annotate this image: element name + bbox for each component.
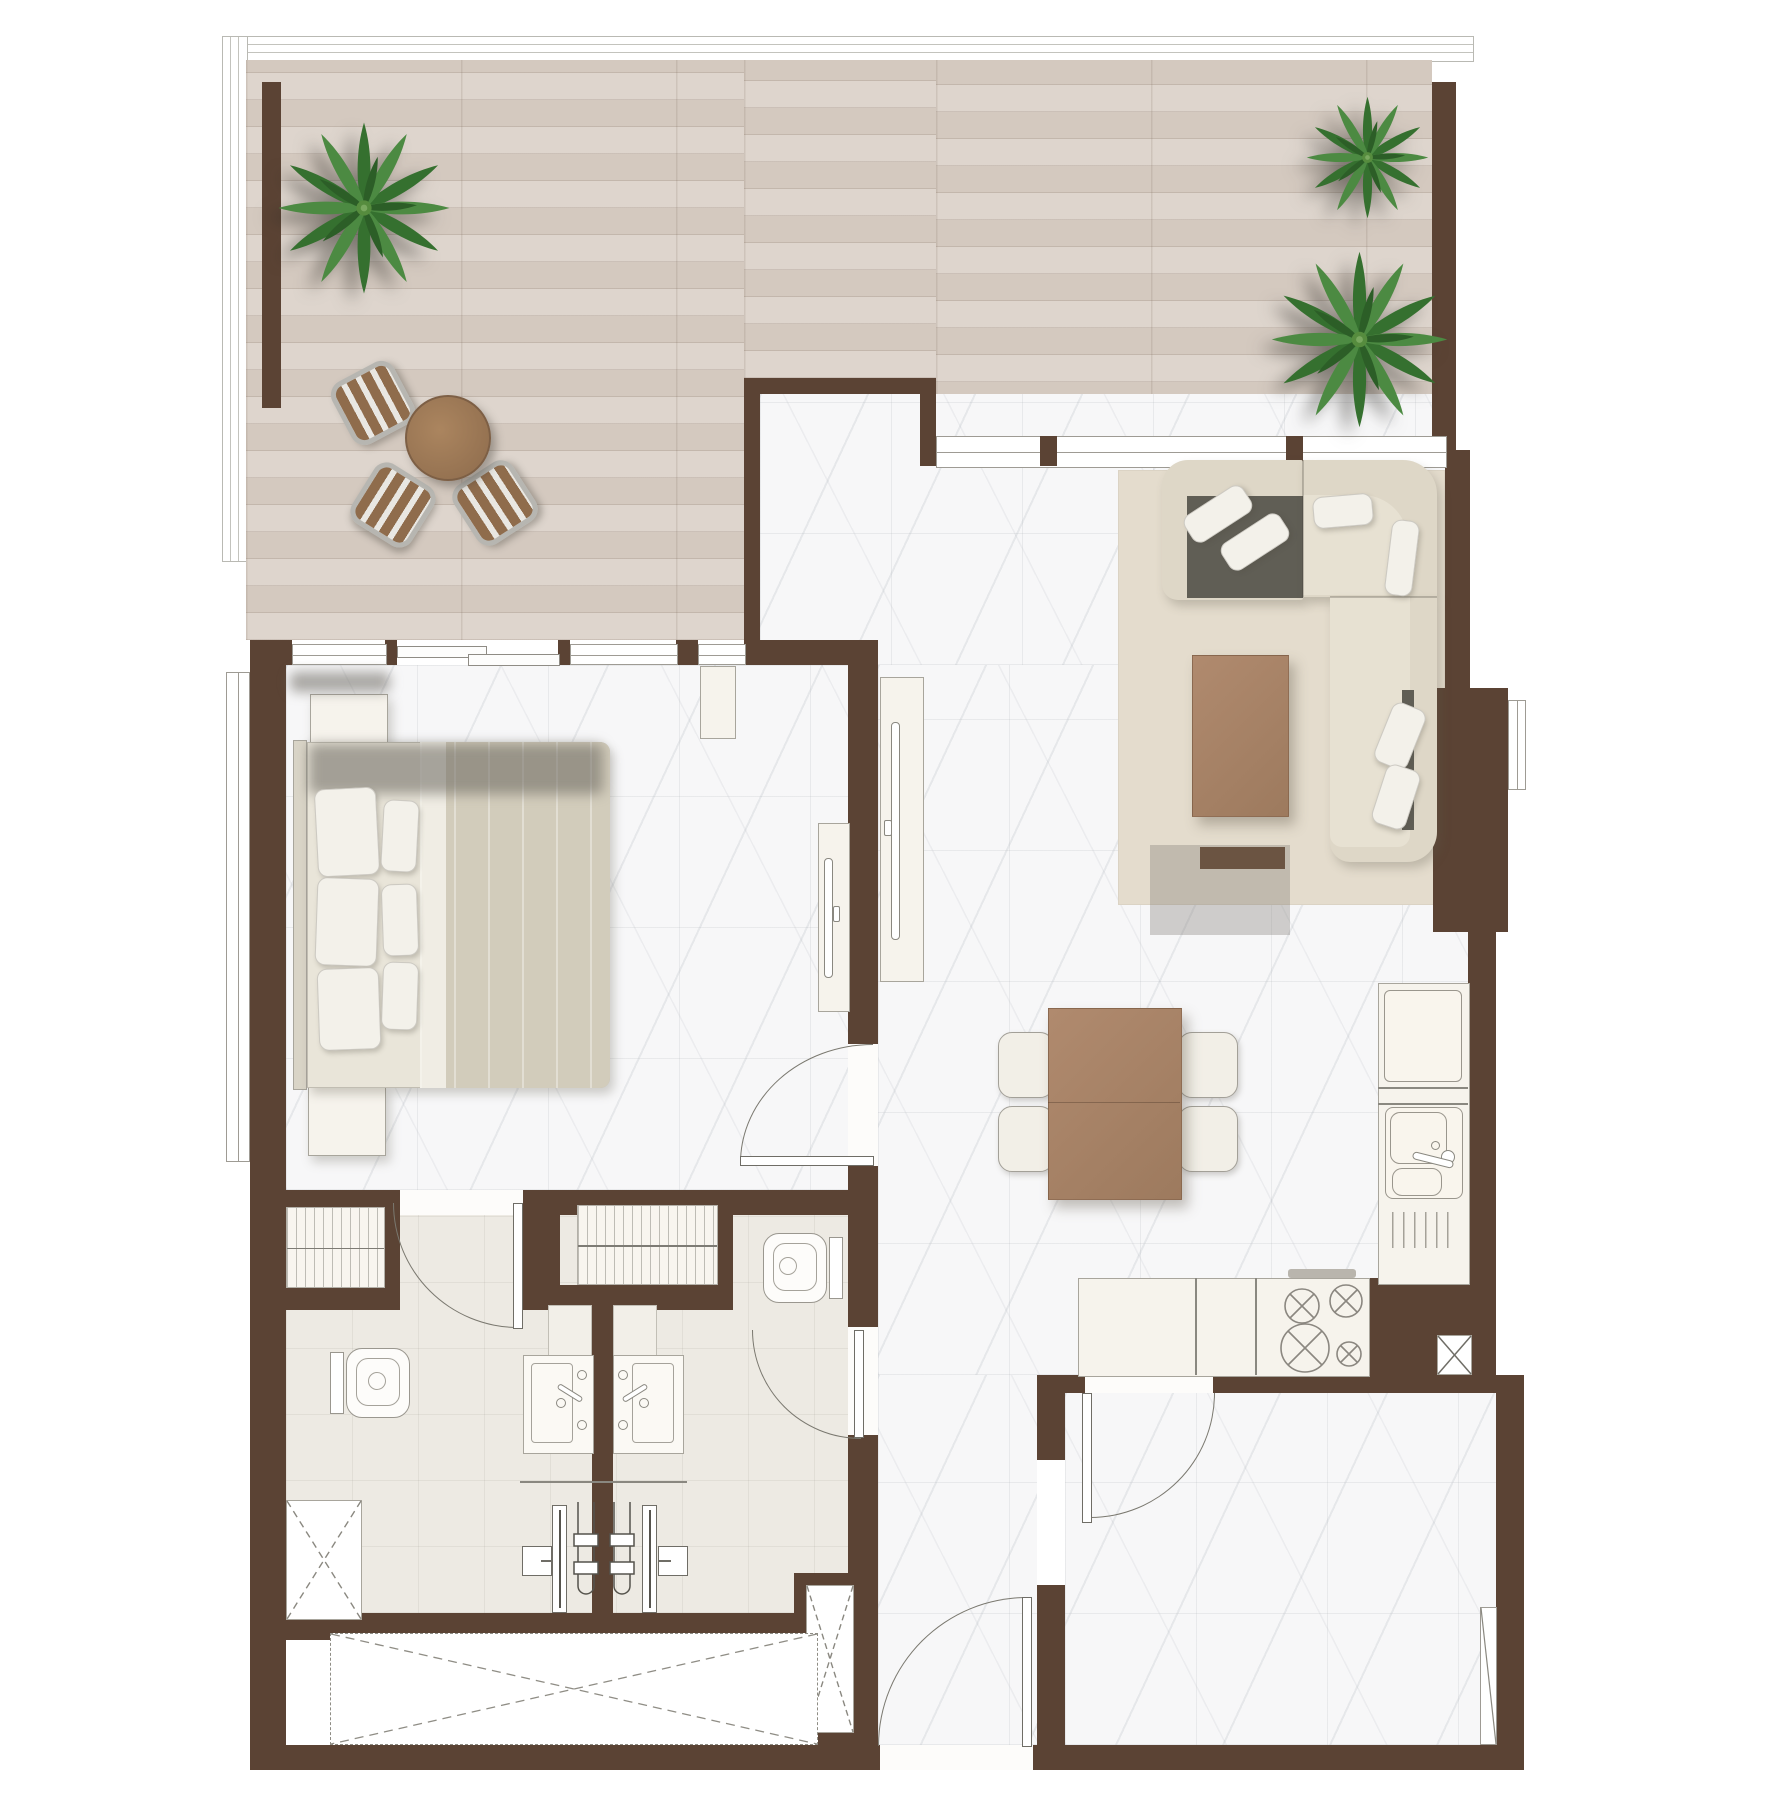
shower-plumbing [570, 1500, 640, 1610]
range-hood [1200, 847, 1285, 869]
rightroom-east-niche [1480, 1607, 1497, 1745]
vanity-1-tap-cold [577, 1420, 587, 1430]
wall-under-wardrobe-1 [250, 1288, 400, 1310]
counter-south-divider-1 [1195, 1278, 1197, 1375]
vanity-1-upper [548, 1305, 592, 1357]
void-panel [330, 1633, 818, 1745]
bedroom-dresser [700, 666, 736, 739]
dining-chair-3 [1178, 1032, 1238, 1098]
bed-shadow [309, 744, 603, 794]
shower-glass-line [520, 1481, 687, 1483]
vanity-1-tap-hot [577, 1370, 587, 1380]
vanity-2-upper [613, 1305, 657, 1357]
shower-column-1 [552, 1505, 567, 1613]
wall-bedroom-north-corner [250, 640, 292, 665]
sink-faucet-knob [1431, 1141, 1440, 1150]
wall-kitchen-south-mass [1368, 1278, 1496, 1375]
wall-hall-east-upper [1037, 1393, 1065, 1460]
counter-divider-2 [1378, 1103, 1468, 1105]
bedroom-tv-mount [833, 906, 840, 922]
terrace-floor-mid [744, 60, 936, 378]
toilet-2-tank [829, 1237, 843, 1299]
terrace-balustrade-left [222, 36, 248, 562]
terrace-balustrade-top [222, 36, 1474, 62]
entry-door-leaf [1022, 1597, 1032, 1747]
palm-tree-left [269, 113, 459, 303]
toilet-1-tank [330, 1352, 344, 1414]
wall-hall-east-lower [1037, 1585, 1065, 1745]
dining-chair-1 [998, 1032, 1054, 1098]
sofa-seam-1 [1302, 460, 1304, 597]
nightstand-bottom [308, 1086, 386, 1156]
palm-tree-top-right [1300, 90, 1435, 225]
wall-east-upper [1445, 450, 1470, 688]
toilet-1-drain [368, 1372, 386, 1390]
shower-column-2 [642, 1505, 657, 1613]
wall-bedroom-living-divider [848, 665, 878, 1044]
bedroom-door-leaf [740, 1156, 874, 1166]
counter-south-divider-2 [1255, 1278, 1257, 1375]
bed-pillow-6 [381, 961, 419, 1030]
bed-pillow-1 [314, 786, 381, 877]
wall-bedroom-living-divider-low [848, 1166, 878, 1193]
bed-pillow-4 [380, 799, 420, 873]
wall-stub-b [523, 1190, 560, 1310]
nightstand-top [310, 694, 388, 746]
wall-bedroom-north-east [744, 640, 878, 665]
corner-glazing [698, 644, 746, 665]
bed-pillow-3 [317, 967, 382, 1051]
wardrobe-2 [577, 1205, 718, 1285]
terrace-table [405, 395, 491, 481]
wall-south-east [1033, 1745, 1524, 1770]
vanity-2-lever-knob [639, 1398, 649, 1408]
living-tv-mount [884, 820, 892, 836]
wall-east-column [1433, 688, 1508, 932]
dressing-door-leaf [513, 1203, 523, 1329]
wardrobe-1 [286, 1207, 385, 1288]
sofa-pillow-3 [1312, 492, 1375, 529]
wall-kitchen-east [1468, 932, 1496, 1283]
wall-rightroom-north-west [1037, 1375, 1085, 1393]
palm-tree-right [1262, 242, 1457, 437]
bedroom-window-a [292, 644, 387, 665]
vanity-1-lever-knob [556, 1398, 566, 1408]
bedroom-tv [824, 858, 833, 978]
wall-wardrobe-2-jamb [718, 1215, 733, 1290]
curtain-shadow [290, 672, 390, 692]
bedroom-window-b [570, 644, 678, 665]
terrace-sliding-panel-2 [468, 654, 560, 666]
sofa-seam-2 [1330, 596, 1437, 598]
column-side-window [1508, 700, 1526, 790]
entry-door-opening [880, 1745, 1033, 1770]
bed-pillow-2 [314, 877, 379, 967]
counter-divider-1 [1378, 1087, 1468, 1089]
wall-south-west [250, 1745, 885, 1770]
shaft-left [286, 1500, 362, 1620]
bed-pillow-5 [381, 883, 419, 956]
bed-headboard [293, 740, 307, 1090]
wall-rightroom-east-low [1497, 1607, 1524, 1747]
shower-head-1 [522, 1546, 552, 1576]
shaft-kitchen [1437, 1335, 1472, 1375]
wall-window-post-b2 [1040, 436, 1057, 466]
rightroom-door-opening [1085, 1375, 1213, 1393]
dining-table-seam [1048, 1102, 1180, 1103]
wall-living-north [744, 378, 936, 394]
rightroom-door-leaf [1082, 1393, 1092, 1523]
wall-bedroom-north-post-c [676, 640, 698, 665]
sink-basin-small [1392, 1168, 1442, 1196]
vanity-2-tap-hot [618, 1370, 628, 1380]
vanity-1-basin [531, 1363, 573, 1443]
bathroom2-door-leaf [854, 1330, 864, 1438]
fridge [1384, 990, 1462, 1082]
dining-chair-2 [998, 1106, 1054, 1172]
hob-grease-tray [1288, 1269, 1356, 1278]
wall-hall-west-upper [848, 1193, 878, 1327]
wall-window-post-a [920, 378, 936, 466]
dining-table [1048, 1008, 1182, 1200]
toilet-2-drain [779, 1257, 797, 1275]
living-tv [891, 722, 900, 940]
bedroom-window-sill [226, 672, 250, 1162]
hob-burners [1258, 1280, 1368, 1373]
shower-head-2 [658, 1546, 688, 1576]
wall-living-west [744, 378, 760, 665]
wall-rightroom-north-east [1213, 1375, 1524, 1393]
wall-rightroom-east [1496, 1393, 1524, 1607]
coffee-table [1192, 655, 1289, 817]
floor-plan [0, 0, 1784, 1800]
sink-drainboard [1392, 1212, 1452, 1248]
dining-chair-4 [1178, 1106, 1238, 1172]
vanity-2-tap-cold [618, 1420, 628, 1430]
